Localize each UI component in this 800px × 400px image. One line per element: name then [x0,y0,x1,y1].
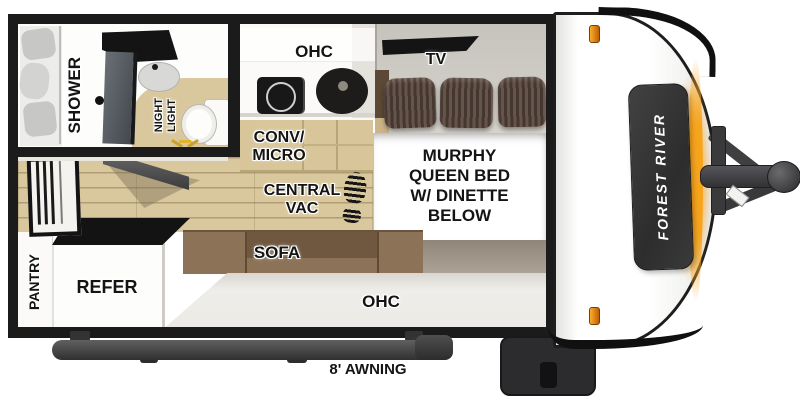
cap-bottom-trim [548,312,703,349]
pantry-label: PANTRY [26,254,42,310]
sofa-label: SOFA [238,243,316,262]
shower-fixture [20,27,57,61]
shelf-line [59,161,63,224]
hitch-coupler-knob [767,161,800,193]
sink-icon [316,68,368,114]
vanity-cabinet [102,51,137,144]
awning-head [415,335,453,360]
door-knob-icon [95,96,104,105]
marker-light-icon [589,307,600,325]
sofa-seam [377,232,379,274]
drain-dot [338,81,348,91]
battery-handle [540,362,557,388]
conv-micro-line2: MICRO [240,147,318,165]
faucet-dot-icon [152,64,158,70]
pantry-cabinet [27,156,82,237]
ohc-top-label: OHC [283,42,345,61]
night-light-label-1: NIGHT [153,98,165,132]
shelf-line [43,161,48,224]
floorplan-scene: SHOWER NIGHT LIGHT OHC TV CONV/ MICRO CE… [0,0,800,400]
conv-micro-line1: CONV/ [240,129,318,147]
conv-micro-label: CONV/ MICRO [240,129,318,165]
refer-label: REFER [62,277,152,297]
bed-platform [423,240,546,273]
shower-label: SHOWER [65,57,85,134]
bed-pillow [440,78,494,129]
boot-heel [342,207,362,224]
murphy-line3: W/ DINETTE [373,186,546,206]
murphy-line4: BELOW [373,206,546,226]
cooktop-icon [257,77,303,114]
shelf-line [50,161,55,224]
marker-light-icon [589,25,600,43]
wall-top [8,14,560,24]
pantry-label-wrap: PANTRY [20,238,48,326]
wall-trim [18,157,228,161]
bed-pillow [498,77,547,128]
bathroom-wall-bottom [8,147,240,157]
night-light-label-wrap: NIGHT LIGHT [148,90,182,140]
bathroom-wall-right [228,24,240,157]
boot-toe [342,171,368,204]
central-vac-line2: VAC [262,200,342,218]
night-light-label-2: LIGHT [166,99,178,132]
brand-badge: FOREST RIVER [628,83,694,271]
awning-bar [52,340,432,360]
shower-label-wrap: SHOWER [61,42,89,148]
awning-label: 8' AWNING [328,362,408,379]
murphy-line2: QUEEN BED [373,166,546,186]
murphy-line1: MURPHY [373,146,546,166]
wall-left [8,14,18,338]
vanity-sink [138,62,180,92]
murphy-bed-label: MURPHY QUEEN BED W/ DINETTE BELOW [373,146,546,226]
wall-bottom [8,327,560,338]
bed-pillow [383,77,437,129]
shelf-line [36,162,41,225]
central-vac-line1: CENTRAL [262,182,342,200]
central-vac-label: CENTRAL VAC [262,182,342,218]
tv-label: TV [413,51,459,69]
brand-label: FOREST RIVER [651,113,671,241]
burner-ring [266,82,296,112]
shower-fixture [22,100,57,137]
ohc-bottom-label: OHC [350,292,412,311]
